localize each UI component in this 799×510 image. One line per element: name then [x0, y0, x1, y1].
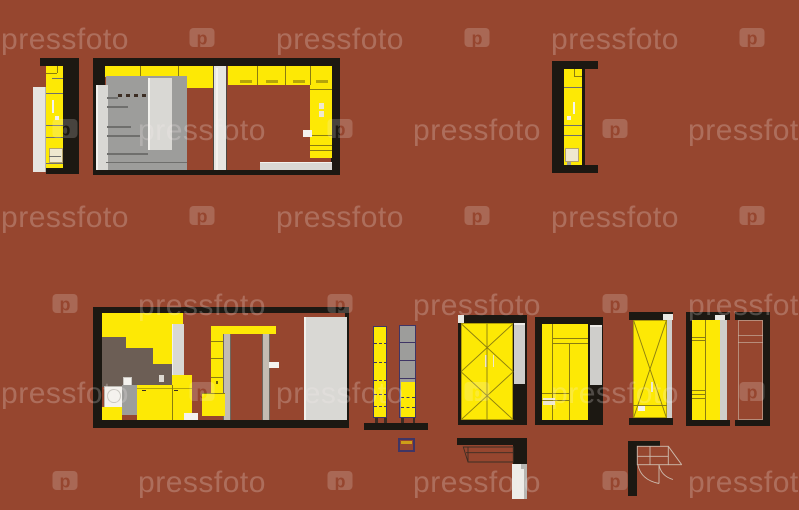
pressfoto-logo-icon	[740, 206, 765, 225]
shelf-edge	[374, 380, 387, 381]
floor-beam	[46, 168, 79, 174]
watermark-text: pressfoto	[1, 201, 129, 235]
shelf-line	[52, 78, 63, 79]
floor-beam	[552, 165, 598, 173]
shelf-line	[692, 337, 705, 338]
door-handle	[573, 102, 575, 114]
base-box	[202, 393, 225, 416]
watermark-text: pressfoto	[688, 466, 799, 500]
cabinet-divider	[310, 66, 311, 85]
side-inset	[590, 325, 602, 385]
watermark-text-label: pressfoto	[276, 201, 404, 234]
shelf-line	[107, 135, 140, 137]
sink-bowl	[107, 389, 121, 404]
door-header	[223, 326, 275, 335]
drawer-box	[565, 148, 579, 162]
desk-block	[513, 445, 526, 463]
ceiling-beam	[93, 58, 340, 66]
watermark-logo	[465, 28, 490, 52]
divider	[705, 320, 706, 420]
cabinet-edge	[582, 69, 585, 165]
outline-shelf	[738, 335, 763, 336]
pressfoto-logo-icon	[53, 471, 78, 490]
watermark-logo	[603, 119, 628, 143]
upper-cabinet	[126, 348, 153, 365]
shelf-edge	[401, 397, 415, 398]
divider	[569, 343, 570, 422]
light-switch	[269, 362, 279, 368]
door-panel	[633, 320, 666, 418]
floor-beam	[458, 420, 527, 425]
wall-column	[63, 66, 79, 173]
shelf-edge	[374, 394, 387, 395]
hook	[118, 94, 122, 97]
door-gap	[240, 80, 252, 83]
shelf-edge	[374, 406, 387, 407]
watermark-logo	[740, 28, 765, 52]
watermark-logo	[53, 471, 78, 495]
hook	[126, 94, 130, 97]
pressfoto-logo-icon	[190, 206, 215, 225]
floor-beam	[686, 420, 730, 426]
shelf-line	[542, 393, 569, 394]
shelf-edge	[374, 362, 387, 363]
pressfoto-logo-icon	[603, 294, 628, 313]
watermark-text-label: pressfoto	[551, 201, 679, 234]
shelf-line	[310, 89, 332, 90]
shelf-line	[310, 135, 332, 136]
shelf-line	[46, 137, 63, 138]
base-plinth	[364, 423, 428, 430]
door-handle	[52, 100, 54, 113]
watermark-text: pressfoto	[551, 23, 679, 57]
pressfoto-logo-icon	[603, 119, 628, 138]
oven	[122, 385, 137, 415]
mirror-panel	[148, 78, 172, 150]
shelf-line	[310, 145, 332, 146]
wardrobe-side-panel	[304, 317, 347, 422]
left-column	[535, 317, 542, 426]
drawer-handle	[174, 390, 178, 392]
watermark-text: pressfoto	[138, 466, 266, 500]
top-arm	[628, 441, 660, 447]
shelf-edge	[401, 407, 415, 408]
shelf-line	[564, 87, 582, 88]
outline-shelf	[738, 342, 763, 343]
desk-leg-notch	[521, 464, 524, 469]
watermark-logo	[53, 294, 78, 318]
left-wall	[93, 307, 102, 428]
desk-leg-shade	[524, 464, 527, 499]
shelf-line	[211, 377, 223, 378]
shelf-step-line	[574, 76, 582, 77]
wall-column	[552, 61, 564, 173]
watermark-logo	[190, 28, 215, 52]
cabinet-divider	[285, 66, 286, 85]
shelf-line	[692, 390, 705, 391]
watermark-text: pressfoto	[276, 201, 404, 235]
door-handle	[485, 355, 487, 367]
shelf-line	[107, 153, 148, 155]
shelf-line	[46, 93, 63, 94]
plinth-panel	[184, 413, 198, 420]
shelf-line	[692, 394, 705, 395]
pressfoto-logo-icon	[190, 28, 215, 47]
door-panel	[461, 323, 513, 420]
watermark-logo	[603, 471, 628, 495]
watermark-text-label: pressfoto	[138, 466, 266, 499]
watermark-text: pressfoto	[551, 201, 679, 235]
watermark-logo	[328, 471, 353, 495]
wall-panel	[33, 87, 47, 172]
watermark-logo	[603, 294, 628, 318]
pressfoto-logo-icon	[328, 471, 353, 490]
shelf-line	[552, 338, 589, 339]
pressfoto-logo-icon	[465, 28, 490, 47]
watermark-text-label: pressfoto	[413, 114, 541, 147]
counter-edge	[137, 388, 192, 389]
watermark-logo	[740, 206, 765, 230]
pressfoto-logo-icon	[603, 471, 628, 490]
shelf-line	[310, 150, 332, 151]
top-beam	[464, 315, 526, 323]
watermark-text-label: pressfoto	[551, 23, 679, 56]
light-switch	[303, 130, 312, 137]
wardrobe-body	[106, 76, 187, 170]
shelf-line	[692, 398, 705, 399]
upper-side	[153, 348, 172, 365]
cabinet-handle	[319, 111, 324, 117]
drawer-handle	[142, 390, 146, 392]
wall-strip	[172, 324, 184, 375]
watermark-text: pressfoto	[1, 23, 129, 57]
watermark-text: pressfoto	[276, 23, 404, 57]
shelf-line	[107, 97, 118, 99]
shelf-line	[107, 126, 131, 128]
right-column	[763, 312, 770, 425]
cabinet-handle	[319, 103, 324, 109]
pressfoto-logo-icon	[465, 206, 490, 225]
shelf-line	[542, 400, 569, 401]
desk-side-outline	[463, 447, 513, 462]
drawer-line	[49, 156, 61, 157]
shelf-line	[564, 135, 582, 136]
door-jamb-right	[262, 334, 270, 420]
door-gap	[293, 80, 305, 83]
pressfoto-logo-icon	[740, 28, 765, 47]
shelf-line	[211, 358, 223, 359]
door-handle	[493, 355, 495, 367]
post	[628, 441, 637, 497]
side-inset	[514, 323, 525, 383]
hook	[134, 94, 138, 97]
hook	[142, 94, 146, 97]
shelf-edge	[374, 343, 387, 344]
watermark-text-label: pressfoto	[276, 23, 404, 56]
watermark-logo	[465, 206, 490, 230]
shelf-divider	[400, 360, 415, 361]
plinth-line	[106, 162, 187, 163]
watermark-text: pressfoto	[688, 114, 799, 148]
upper-band	[126, 337, 172, 348]
shelf-line	[211, 341, 223, 342]
shelf-step-line	[46, 73, 57, 74]
base-corner	[102, 407, 122, 420]
side-strip	[667, 320, 672, 418]
watermark-text-label: pressfoto	[1, 201, 129, 234]
knob	[567, 116, 571, 120]
watermark-text-label: pressfoto	[1, 23, 129, 56]
door-gap	[316, 80, 328, 83]
top-sliver	[458, 315, 465, 323]
watermark-text-label: pressfoto	[688, 466, 799, 499]
door-gap	[266, 80, 278, 83]
shelf-line	[46, 125, 63, 126]
shelf-divider	[400, 378, 415, 379]
floor-beam	[629, 418, 673, 425]
door-handle	[651, 382, 653, 392]
desk-front-outline	[637, 446, 681, 483]
cabinet-divider	[257, 66, 258, 85]
shelf-lower-cells	[401, 382, 415, 418]
floor-beam	[93, 170, 340, 175]
shelf-line	[692, 340, 705, 341]
shelf-column-left	[373, 326, 387, 418]
floor-beam	[95, 420, 349, 428]
pressfoto-logo-icon	[53, 294, 78, 313]
faucet	[159, 375, 164, 382]
floor-beam	[535, 420, 603, 425]
watermark-logo	[190, 206, 215, 230]
side-strip	[720, 320, 727, 420]
right-wall	[331, 58, 340, 173]
partition-highlight	[216, 68, 218, 170]
shelf-divider	[400, 342, 415, 343]
floor-beam	[735, 420, 770, 426]
tall-cabinet	[310, 85, 332, 158]
knob	[55, 116, 59, 120]
bottom-vent	[638, 406, 645, 411]
stool-seat	[401, 441, 412, 444]
watermark-text-label: pressfoto	[688, 114, 799, 147]
shelf-line	[46, 163, 63, 164]
shelf-line	[107, 106, 128, 108]
knob	[216, 381, 219, 384]
ceiling-beam	[40, 58, 79, 66]
shelf-line	[564, 125, 582, 126]
watermark-text: pressfoto	[413, 114, 541, 148]
stock-photo-canvas: pressfotopressfotopressfotopressfotopres…	[0, 0, 799, 510]
desk-top	[457, 438, 527, 445]
